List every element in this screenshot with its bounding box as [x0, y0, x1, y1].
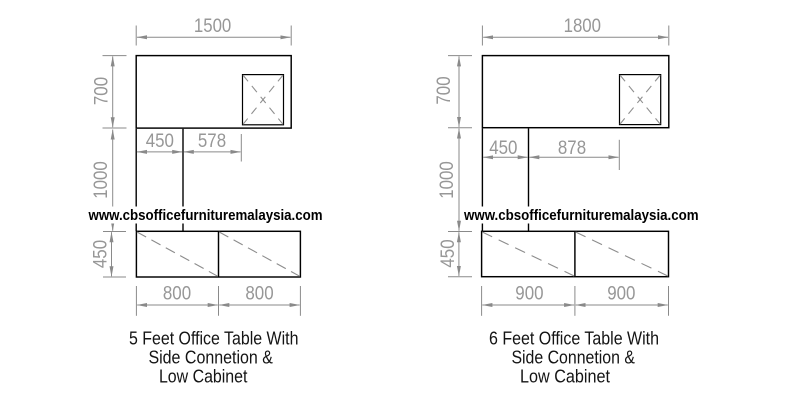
svg-text:Low Cabinet: Low Cabinet	[520, 366, 610, 387]
svg-text:700: 700	[91, 77, 112, 105]
svg-text:450: 450	[146, 131, 174, 152]
svg-text:1800: 1800	[564, 16, 601, 37]
svg-text:900: 900	[515, 284, 543, 305]
svg-text:878: 878	[558, 138, 586, 159]
svg-text:450: 450	[489, 138, 517, 159]
svg-text:www.cbsofficefurnituremalaysia: www.cbsofficefurnituremalaysia.com	[463, 208, 699, 224]
svg-text:450: 450	[91, 240, 112, 268]
svg-text:5 Feet Office Table With: 5 Feet Office Table With	[129, 328, 299, 349]
svg-text:700: 700	[434, 76, 455, 104]
svg-text:900: 900	[607, 284, 635, 305]
svg-text:6 Feet Office Table With: 6 Feet Office Table With	[489, 328, 659, 349]
svg-text:www.cbsofficefurnituremalaysia: www.cbsofficefurnituremalaysia.com	[88, 208, 323, 224]
svg-text:1000: 1000	[437, 161, 458, 198]
svg-text:1500: 1500	[194, 16, 231, 37]
svg-text:450: 450	[438, 239, 459, 267]
svg-text:578: 578	[198, 131, 226, 152]
svg-text:Low Cabinet: Low Cabinet	[159, 366, 248, 387]
svg-text:Side Connetion &: Side Connetion &	[511, 347, 635, 368]
svg-text:800: 800	[163, 284, 191, 305]
svg-text:Side Connetion &: Side Connetion &	[148, 347, 273, 368]
svg-text:800: 800	[245, 284, 273, 305]
svg-text:1000: 1000	[91, 161, 112, 198]
